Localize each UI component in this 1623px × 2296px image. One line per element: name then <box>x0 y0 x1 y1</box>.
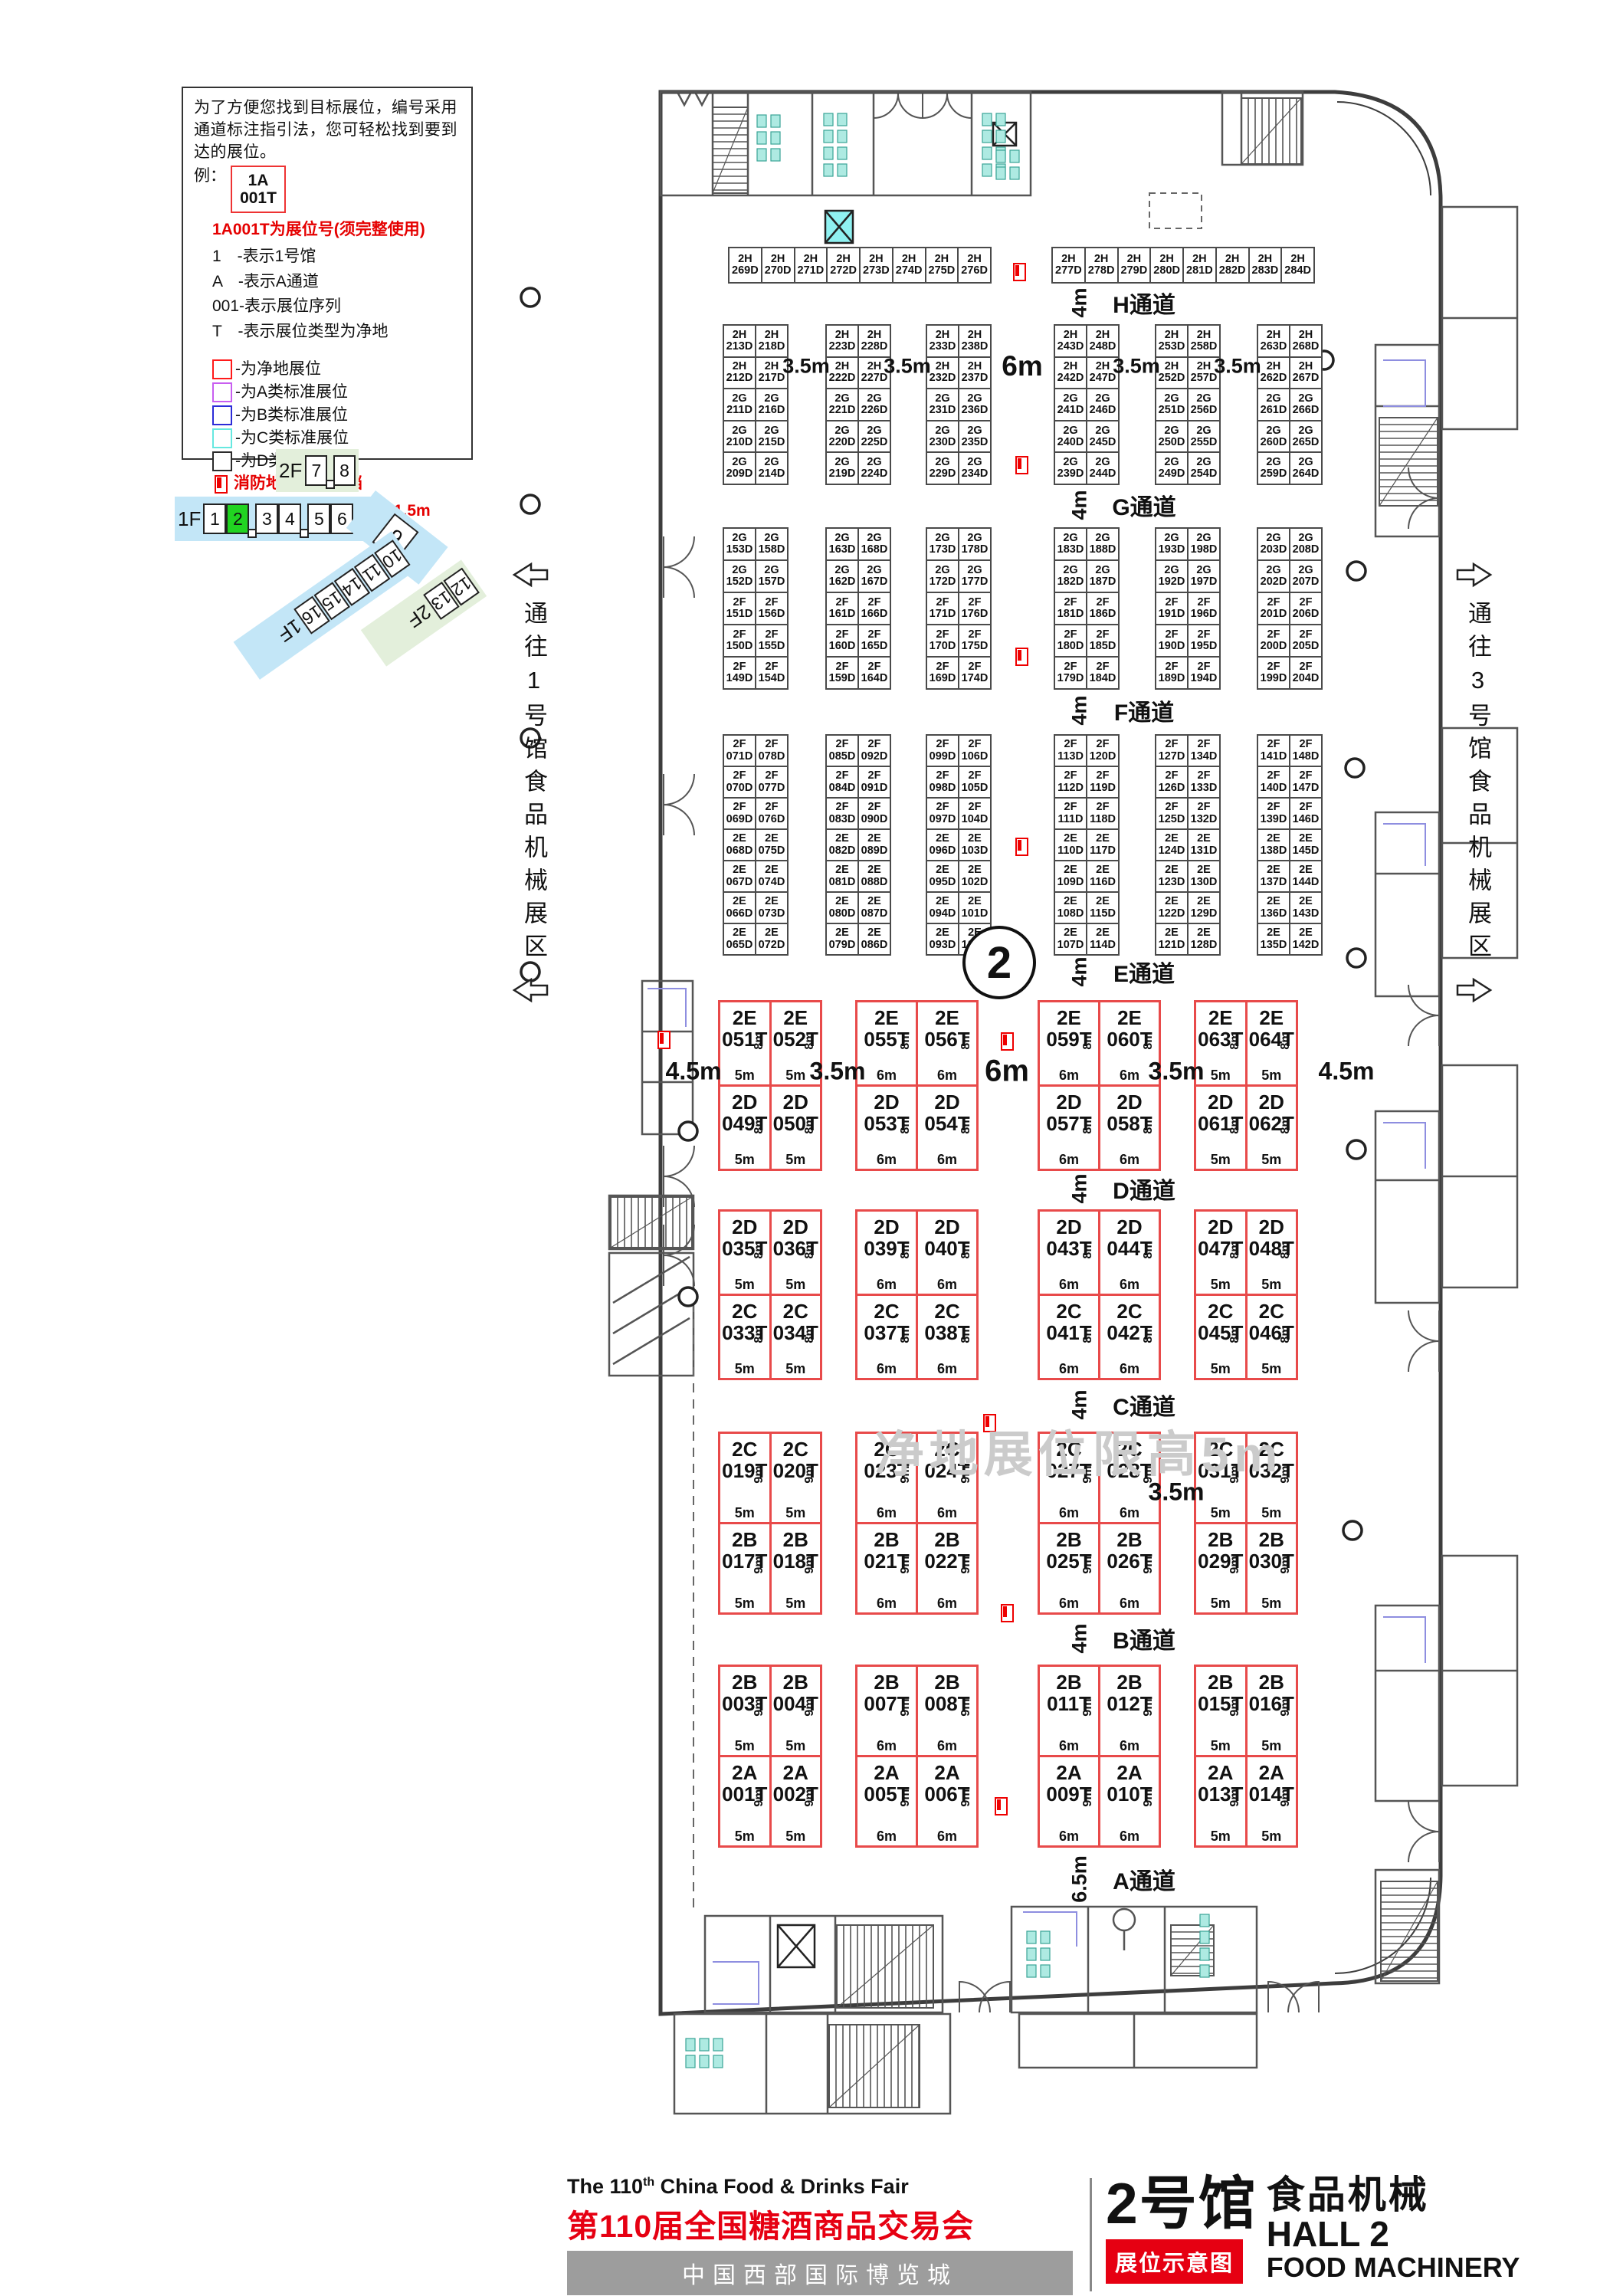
booth-2F-092D: 2F092D <box>857 734 891 767</box>
legend-swatch-label: -为C类标准展位 <box>235 428 349 450</box>
booth-2F-171D: 2F171D <box>926 592 959 625</box>
booth-2H-276D: 2H276D <box>957 247 992 284</box>
booth-2D-048T: 2D048T8m5m <box>1245 1209 1299 1296</box>
booth-2D-050T: 2D050T8m5m <box>769 1084 823 1171</box>
booth-2F-165D: 2F165D <box>857 624 891 658</box>
booth-2G-178D: 2G178D <box>958 527 992 561</box>
booth-2D-040T: 2D040T8m6m <box>916 1209 979 1296</box>
booth-2G-249D: 2G249D <box>1155 451 1189 485</box>
booth-2G-265D: 2G265D <box>1289 420 1323 454</box>
booth-2F-076D: 2F076D <box>755 797 789 830</box>
booth-2F-125D: 2F125D <box>1155 797 1189 830</box>
booth-2A-001T: 2A001T9m5m <box>718 1755 772 1848</box>
booth-2E-082D: 2E082D <box>825 828 859 861</box>
booth-2B-021T: 2B021T9m6m <box>855 1522 918 1615</box>
booth-2G-158D: 2G158D <box>755 527 789 561</box>
hall-title-cn: 2号馆 <box>1106 2175 1257 2232</box>
booth-2D-036T: 2D036T8m5m <box>769 1209 823 1296</box>
booth-2E-116D: 2E116D <box>1086 860 1120 893</box>
booth-2H-243D: 2H243D <box>1054 324 1087 358</box>
booth-2F-185D: 2F185D <box>1086 624 1120 658</box>
booth-2F-184D: 2F184D <box>1086 656 1120 690</box>
booth-2F-133D: 2F133D <box>1187 766 1221 799</box>
arrow-left-icon <box>514 979 547 1001</box>
booth-2F-201D: 2F201D <box>1257 592 1290 625</box>
booth-2F-127D: 2F127D <box>1155 734 1189 767</box>
minimap-floor1: 1F123456 <box>175 497 382 541</box>
booth-2E-103D: 2E103D <box>958 828 992 861</box>
booth-2E-073D: 2E073D <box>755 891 789 924</box>
booth-2G-209D: 2G209D <box>723 451 756 485</box>
booth-2F-179D: 2F179D <box>1054 656 1087 690</box>
dim-label: 6m <box>985 1055 1029 1089</box>
legend-item: A -表示A通道 <box>212 270 461 295</box>
booth-2E-135D: 2E135D <box>1257 923 1290 956</box>
booth-2F-205D: 2F205D <box>1289 624 1323 658</box>
minimap-hall-7: 7 <box>305 455 327 486</box>
booth-2G-198D: 2G198D <box>1187 527 1221 561</box>
booth-2C-034T: 2C034T8m5m <box>769 1294 823 1380</box>
booth-2B-029T: 2B029T9m5m <box>1194 1522 1248 1615</box>
booth-2H-274D: 2H274D <box>892 247 926 284</box>
booth-2F-113D: 2F113D <box>1054 734 1087 767</box>
aisle-H通道: H通道 <box>1113 286 1175 320</box>
booth-2G-167D: 2G167D <box>857 559 891 593</box>
booth-2F-083D: 2F083D <box>825 797 859 830</box>
booth-2G-216D: 2G216D <box>755 388 789 421</box>
booth-2F-084D: 2F084D <box>825 766 859 799</box>
booth-2F-149D: 2F149D <box>723 656 756 690</box>
booth-2F-147D: 2F147D <box>1289 766 1323 799</box>
booth-2G-219D: 2G219D <box>825 451 859 485</box>
booth-2F-199D: 2F199D <box>1257 656 1290 690</box>
minimap-hall-4: 4 <box>278 503 301 534</box>
booth-2F-176D: 2F176D <box>958 592 992 625</box>
legend-swatch-label: -为净地展位 <box>235 359 321 381</box>
fair-title-cn: 第110届全国糖酒商品交易会 <box>567 2200 1082 2246</box>
dim-label: 3.5m <box>1113 355 1160 379</box>
fair-title-en: The 110th China Food & Drinks Fair <box>567 2175 1082 2199</box>
booth-2F-071D: 2F071D <box>723 734 756 767</box>
booth-2F-204D: 2F204D <box>1289 656 1323 690</box>
booth-2D-054T: 2D054T8m6m <box>916 1084 979 1171</box>
legend-panel: 为了方便您找到目标展位，编号采用通道标注指引法，您可轻松找到要到达的展位。 例：… <box>182 87 473 460</box>
legend-swatch-row: -为B类标准展位 <box>212 404 461 427</box>
booth-2B-016T: 2B016T9m5m <box>1245 1665 1299 1757</box>
legend-swatch <box>212 451 232 471</box>
booth-2F-175D: 2F175D <box>958 624 992 658</box>
booth-2H-213D: 2H213D <box>723 324 756 358</box>
booth-2F-105D: 2F105D <box>958 766 992 799</box>
aisle-A通道: A通道 <box>1113 1862 1175 1896</box>
booth-2E-108D: 2E108D <box>1054 891 1087 924</box>
booth-2E-095D: 2E095D <box>926 860 959 893</box>
booth-2F-104D: 2F104D <box>958 797 992 830</box>
booth-2H-263D: 2H263D <box>1257 324 1290 358</box>
floor-plan-page: 为了方便您找到目标展位，编号采用通道标注指引法，您可轻松找到要到达的展位。 例：… <box>0 0 1623 2296</box>
booth-2G-187D: 2G187D <box>1086 559 1120 593</box>
corridor-to-hall3: 通往3号馆食品机械展区 <box>1461 601 1495 967</box>
booth-2G-208D: 2G208D <box>1289 527 1323 561</box>
booth-2H-258D: 2H258D <box>1187 324 1221 358</box>
booth-2F-200D: 2F200D <box>1257 624 1290 658</box>
booth-2F-111D: 2F111D <box>1054 797 1087 830</box>
booth-2H-275D: 2H275D <box>925 247 959 284</box>
minimap-floor1-label: 1F <box>178 507 201 531</box>
booth-2G-183D: 2G183D <box>1054 527 1087 561</box>
booth-2C-042T: 2C042T8m6m <box>1098 1294 1161 1380</box>
venue-name: 中国西部国际博览城 <box>567 2251 1073 2295</box>
booth-2F-097D: 2F097D <box>926 797 959 830</box>
booth-2F-191D: 2F191D <box>1155 592 1189 625</box>
booth-2H-273D: 2H273D <box>859 247 893 284</box>
booth-2E-081D: 2E081D <box>825 860 859 893</box>
booth-2G-264D: 2G264D <box>1289 451 1323 485</box>
booth-2E-102D: 2E102D <box>958 860 992 893</box>
booth-2D-057T: 2D057T8m6m <box>1038 1084 1100 1171</box>
booth-2H-284D: 2H284D <box>1280 247 1315 284</box>
footer-divider <box>1090 2178 1092 2291</box>
dim-label: 6m <box>1002 350 1042 382</box>
booth-2B-012T: 2B012T9m6m <box>1098 1665 1161 1757</box>
booth-2F-151D: 2F151D <box>723 592 756 625</box>
fire-hydrant-icon <box>1001 1032 1014 1051</box>
booth-2E-096D: 2E096D <box>926 828 959 861</box>
booth-2G-172D: 2G172D <box>926 559 959 593</box>
booth-2A-010T: 2A010T9m6m <box>1098 1755 1161 1848</box>
booth-2G-250D: 2G250D <box>1155 420 1189 454</box>
booth-2E-065D: 2E065D <box>723 923 756 956</box>
booth-2G-220D: 2G220D <box>825 420 859 454</box>
booth-2F-190D: 2F190D <box>1155 624 1189 658</box>
fire-hydrant-icon <box>657 1031 671 1049</box>
legend-swatch-label: -为A类标准展位 <box>235 382 348 404</box>
booth-2E-064T: 2E064T8m5m <box>1245 1000 1299 1087</box>
footer-branding: The 110th China Food & Drinks Fair 第110届… <box>567 2175 1563 2294</box>
booth-2G-173D: 2G173D <box>926 527 959 561</box>
booth-2G-203D: 2G203D <box>1257 527 1290 561</box>
aisle-G通道: G通道 <box>1112 488 1175 522</box>
booth-2F-139D: 2F139D <box>1257 797 1290 830</box>
legend-items: 1 -表示1号馆A -表示A通道001-表示展位序列T -表示展位类型为净地 <box>194 244 461 344</box>
booth-2H-248D: 2H248D <box>1086 324 1120 358</box>
booth-2G-152D: 2G152D <box>723 559 756 593</box>
booth-2H-253D: 2H253D <box>1155 324 1189 358</box>
booth-2G-231D: 2G231D <box>926 388 959 421</box>
booth-2D-035T: 2D035T8m5m <box>718 1209 772 1296</box>
booth-2B-022T: 2B022T9m6m <box>916 1522 979 1615</box>
booth-2C-037T: 2C037T8m6m <box>855 1294 918 1380</box>
booth-2E-115D: 2E115D <box>1086 891 1120 924</box>
booth-2H-242D: 2H242D <box>1054 356 1087 390</box>
dim-label: 4m <box>1068 1173 1092 1203</box>
booth-2C-045T: 2C045T8m5m <box>1194 1294 1248 1380</box>
booth-2F-164D: 2F164D <box>857 656 891 690</box>
booth-2G-157D: 2G157D <box>755 559 789 593</box>
booth-2B-008T: 2B008T9m6m <box>916 1665 979 1757</box>
legend-swatch-row: -为A类标准展位 <box>212 381 461 404</box>
booth-2E-056T: 2E056T8m6m <box>916 1000 979 1087</box>
booth-2A-009T: 2A009T9m6m <box>1038 1755 1100 1848</box>
legend-swatch <box>212 359 232 379</box>
booth-2F-112D: 2F112D <box>1054 766 1087 799</box>
booth-2D-061T: 2D061T8m5m <box>1194 1084 1248 1171</box>
booth-2F-206D: 2F206D <box>1289 592 1323 625</box>
booth-2C-019T: 2C019T9m5m <box>718 1432 772 1524</box>
booth-2H-238D: 2H238D <box>958 324 992 358</box>
booth-2D-044T: 2D044T8m6m <box>1098 1209 1161 1296</box>
booth-2F-140D: 2F140D <box>1257 766 1290 799</box>
dim-label: 4.5m <box>1319 1058 1375 1086</box>
booth-2F-186D: 2F186D <box>1086 592 1120 625</box>
booth-2H-218D: 2H218D <box>755 324 789 358</box>
booth-2F-085D: 2F085D <box>825 734 859 767</box>
booth-2A-006T: 2A006T9m6m <box>916 1755 979 1848</box>
booth-2B-025T: 2B025T9m6m <box>1038 1522 1100 1615</box>
booth-2G-261D: 2G261D <box>1257 388 1290 421</box>
booth-2G-259D: 2G259D <box>1257 451 1290 485</box>
legend-item: T -表示展位类型为净地 <box>212 320 461 345</box>
booth-2H-271D: 2H271D <box>794 247 828 284</box>
booth-2H-268D: 2H268D <box>1289 324 1323 358</box>
booth-2F-169D: 2F169D <box>926 656 959 690</box>
booth-2G-192D: 2G192D <box>1155 559 1189 593</box>
booth-2G-168D: 2G168D <box>857 527 891 561</box>
booth-2G-239D: 2G239D <box>1054 451 1087 485</box>
booth-2G-207D: 2G207D <box>1289 559 1323 593</box>
dim-label: 4m <box>1068 490 1092 520</box>
booth-2D-053T: 2D053T8m6m <box>855 1084 918 1171</box>
booth-2H-278D: 2H278D <box>1084 247 1119 284</box>
dim-label: 4m <box>1068 287 1092 317</box>
booth-2F-118D: 2F118D <box>1086 797 1120 830</box>
booth-2G-251D: 2G251D <box>1155 388 1189 421</box>
booth-2E-110D: 2E110D <box>1054 828 1087 861</box>
booth-2G-197D: 2G197D <box>1187 559 1221 593</box>
booth-2E-117D: 2E117D <box>1086 828 1120 861</box>
booth-2F-159D: 2F159D <box>825 656 859 690</box>
booth-2G-234D: 2G234D <box>958 451 992 485</box>
minimap-floor2: 2F78 <box>276 449 359 492</box>
legend-swatch <box>212 382 232 402</box>
legend-booth-number-note: 1A001T为展位号(须完整使用) <box>212 219 461 241</box>
booth-2F-146D: 2F146D <box>1289 797 1323 830</box>
booth-2E-080D: 2E080D <box>825 891 859 924</box>
legend-item: 001-表示展位序列 <box>212 294 461 320</box>
booth-2G-224D: 2G224D <box>857 451 891 485</box>
booth-2E-075D: 2E075D <box>755 828 789 861</box>
booth-2C-041T: 2C041T8m6m <box>1038 1294 1100 1380</box>
hall-inner-wall <box>1335 102 1431 1973</box>
booth-2A-002T: 2A002T9m5m <box>769 1755 823 1848</box>
booth-2E-101D: 2E101D <box>958 891 992 924</box>
hall-number-circle: 2 <box>962 926 1036 999</box>
booth-2G-244D: 2G244D <box>1086 451 1120 485</box>
booth-2H-228D: 2H228D <box>857 324 891 358</box>
legend-swatch <box>212 405 232 425</box>
booth-2G-254D: 2G254D <box>1187 451 1221 485</box>
dim-label: 3.5m <box>810 1058 866 1086</box>
booth-2H-269D: 2H269D <box>728 247 762 284</box>
legend-swatch-row: -为净地展位 <box>212 358 461 381</box>
aisle-F通道: F通道 <box>1114 694 1174 727</box>
booth-2E-087D: 2E087D <box>857 891 891 924</box>
booth-2E-123D: 2E123D <box>1155 860 1189 893</box>
booth-2A-013T: 2A013T9m5m <box>1194 1755 1248 1848</box>
booth-2E-138D: 2E138D <box>1257 828 1290 861</box>
height-limit-watermark: 净地展位限高5m <box>875 1415 1284 1486</box>
booth-2H-233D: 2H233D <box>926 324 959 358</box>
booth-2G-210D: 2G210D <box>723 420 756 454</box>
booth-2G-188D: 2G188D <box>1086 527 1120 561</box>
booth-2F-069D: 2F069D <box>723 797 756 830</box>
booth-2A-014T: 2A014T9m5m <box>1245 1755 1299 1848</box>
minimap-hall-3: 3 <box>255 503 278 534</box>
booth-2G-202D: 2G202D <box>1257 559 1290 593</box>
booth-2G-214D: 2G214D <box>755 451 789 485</box>
booth-2E-079D: 2E079D <box>825 923 859 956</box>
booth-2D-039T: 2D039T8m6m <box>855 1209 918 1296</box>
legend-item: 1 -表示1号馆 <box>212 244 461 270</box>
booth-2G-256D: 2G256D <box>1187 388 1221 421</box>
booth-2F-106D: 2F106D <box>958 734 992 767</box>
booth-2E-129D: 2E129D <box>1187 891 1221 924</box>
booth-2D-058T: 2D058T8m6m <box>1098 1084 1161 1171</box>
booth-2F-099D: 2F099D <box>926 734 959 767</box>
booth-2G-153D: 2G153D <box>723 527 756 561</box>
booth-2H-267D: 2H267D <box>1289 356 1323 390</box>
booth-2F-078D: 2F078D <box>755 734 789 767</box>
fire-hydrant-icon <box>1015 648 1028 666</box>
booth-2E-109D: 2E109D <box>1054 860 1087 893</box>
booth-2E-066D: 2E066D <box>723 891 756 924</box>
booth-2B-011T: 2B011T9m6m <box>1038 1665 1100 1757</box>
booth-2E-137D: 2E137D <box>1257 860 1290 893</box>
booth-2F-155D: 2F155D <box>755 624 789 658</box>
booth-2F-195D: 2F195D <box>1187 624 1221 658</box>
booth-2G-245D: 2G245D <box>1086 420 1120 454</box>
booth-2E-131D: 2E131D <box>1187 828 1221 861</box>
booth-2D-043T: 2D043T8m6m <box>1038 1209 1100 1296</box>
dim-label: 3.5m <box>884 355 931 379</box>
booth-2G-177D: 2G177D <box>958 559 992 593</box>
booth-2E-074D: 2E074D <box>755 860 789 893</box>
booth-2F-181D: 2F181D <box>1054 592 1087 625</box>
legend-intro: 为了方便您找到目标展位，编号采用通道标注指引法，您可轻松找到要到达的展位。 <box>194 97 461 164</box>
hall-type-cn: 食品机械 <box>1267 2175 1520 2216</box>
booth-2F-091D: 2F091D <box>857 766 891 799</box>
dim-label: 3.5m <box>782 355 830 379</box>
booth-2G-236D: 2G236D <box>958 388 992 421</box>
booth-2E-072D: 2E072D <box>755 923 789 956</box>
booth-2G-211D: 2G211D <box>723 388 756 421</box>
booth-2E-086D: 2E086D <box>857 923 891 956</box>
dim-label: 4m <box>1068 956 1092 986</box>
booth-2D-062T: 2D062T8m5m <box>1245 1084 1299 1171</box>
booth-2G-215D: 2G215D <box>755 420 789 454</box>
booth-2E-145D: 2E145D <box>1289 828 1323 861</box>
booth-2G-240D: 2G240D <box>1054 420 1087 454</box>
booth-2F-196D: 2F196D <box>1187 592 1221 625</box>
booth-2F-170D: 2F170D <box>926 624 959 658</box>
legend-swatch-row: -为C类标准展位 <box>212 427 461 450</box>
booth-2E-068D: 2E068D <box>723 828 756 861</box>
booth-2B-007T: 2B007T9m6m <box>855 1665 918 1757</box>
aisle-B通道: B通道 <box>1113 1622 1175 1655</box>
minimap-hall-current: 2 <box>226 503 249 534</box>
booth-2G-255D: 2G255D <box>1187 420 1221 454</box>
booth-2G-235D: 2G235D <box>958 420 992 454</box>
booth-2G-163D: 2G163D <box>825 527 859 561</box>
booth-2F-150D: 2F150D <box>723 624 756 658</box>
booth-2H-237D: 2H237D <box>958 356 992 390</box>
booth-2F-119D: 2F119D <box>1086 766 1120 799</box>
booth-2F-126D: 2F126D <box>1155 766 1189 799</box>
fire-hydrant-icon <box>1001 1604 1014 1622</box>
booth-2E-121D: 2E121D <box>1155 923 1189 956</box>
booth-2H-281D: 2H281D <box>1182 247 1217 284</box>
minimap-hall-5: 5 <box>307 503 330 534</box>
booth-2H-279D: 2H279D <box>1117 247 1152 284</box>
plan-badge: 展位示意图 <box>1106 2239 1243 2284</box>
booth-2H-223D: 2H223D <box>825 324 859 358</box>
aisle-E通道: E通道 <box>1113 955 1175 989</box>
arrow-right-icon <box>1457 564 1490 585</box>
booth-2E-122D: 2E122D <box>1155 891 1189 924</box>
dim-label: 4.5m <box>666 1058 722 1086</box>
booth-2F-161D: 2F161D <box>825 592 859 625</box>
dim-label: 3.5m <box>1149 1058 1205 1086</box>
booth-2E-144D: 2E144D <box>1289 860 1323 893</box>
legend-swatch-label: -为B类标准展位 <box>235 405 348 427</box>
booth-2B-003T: 2B003T9m5m <box>718 1665 772 1757</box>
booth-2G-221D: 2G221D <box>825 388 859 421</box>
booth-2F-098D: 2F098D <box>926 766 959 799</box>
booth-2F-141D: 2F141D <box>1257 734 1290 767</box>
legend-example-booth: 1A 001T <box>231 166 286 213</box>
booth-2C-033T: 2C033T8m5m <box>718 1294 772 1380</box>
aisle-D通道: D通道 <box>1113 1172 1175 1205</box>
booth-2F-090D: 2F090D <box>857 797 891 830</box>
booth-2E-143D: 2E143D <box>1289 891 1323 924</box>
booth-2B-004T: 2B004T9m5m <box>769 1665 823 1757</box>
booth-2E-093D: 2E093D <box>926 923 959 956</box>
dim-label: 4m <box>1068 1623 1092 1653</box>
booth-2E-130D: 2E130D <box>1187 860 1221 893</box>
minimap-floor2-label: 2F <box>279 459 302 483</box>
hall-type-en: FOOD MACHINERY <box>1267 2252 1520 2283</box>
booth-2C-046T: 2C046T8m5m <box>1245 1294 1299 1380</box>
booth-2E-124D: 2E124D <box>1155 828 1189 861</box>
booth-2D-047T: 2D047T8m5m <box>1194 1209 1248 1296</box>
corridor-to-hall1: 通往1号馆食品机械展区 <box>516 601 551 967</box>
booth-2E-128D: 2E128D <box>1187 923 1221 956</box>
booth-2G-225D: 2G225D <box>857 420 891 454</box>
booth-2F-160D: 2F160D <box>825 624 859 658</box>
booth-2C-038T: 2C038T8m6m <box>916 1294 979 1380</box>
booth-2B-015T: 2B015T9m5m <box>1194 1665 1248 1757</box>
booth-2H-270D: 2H270D <box>761 247 795 284</box>
booth-2F-180D: 2F180D <box>1054 624 1087 658</box>
booth-2D-049T: 2D049T8m5m <box>718 1084 772 1171</box>
booth-2B-026T: 2B026T9m6m <box>1098 1522 1161 1615</box>
booth-2G-229D: 2G229D <box>926 451 959 485</box>
booth-2H-272D: 2H272D <box>826 247 861 284</box>
booth-2G-182D: 2G182D <box>1054 559 1087 593</box>
hall-title-en: HALL 2 <box>1267 2216 1520 2252</box>
booth-2G-162D: 2G162D <box>825 559 859 593</box>
booth-2B-017T: 2B017T9m5m <box>718 1522 772 1615</box>
